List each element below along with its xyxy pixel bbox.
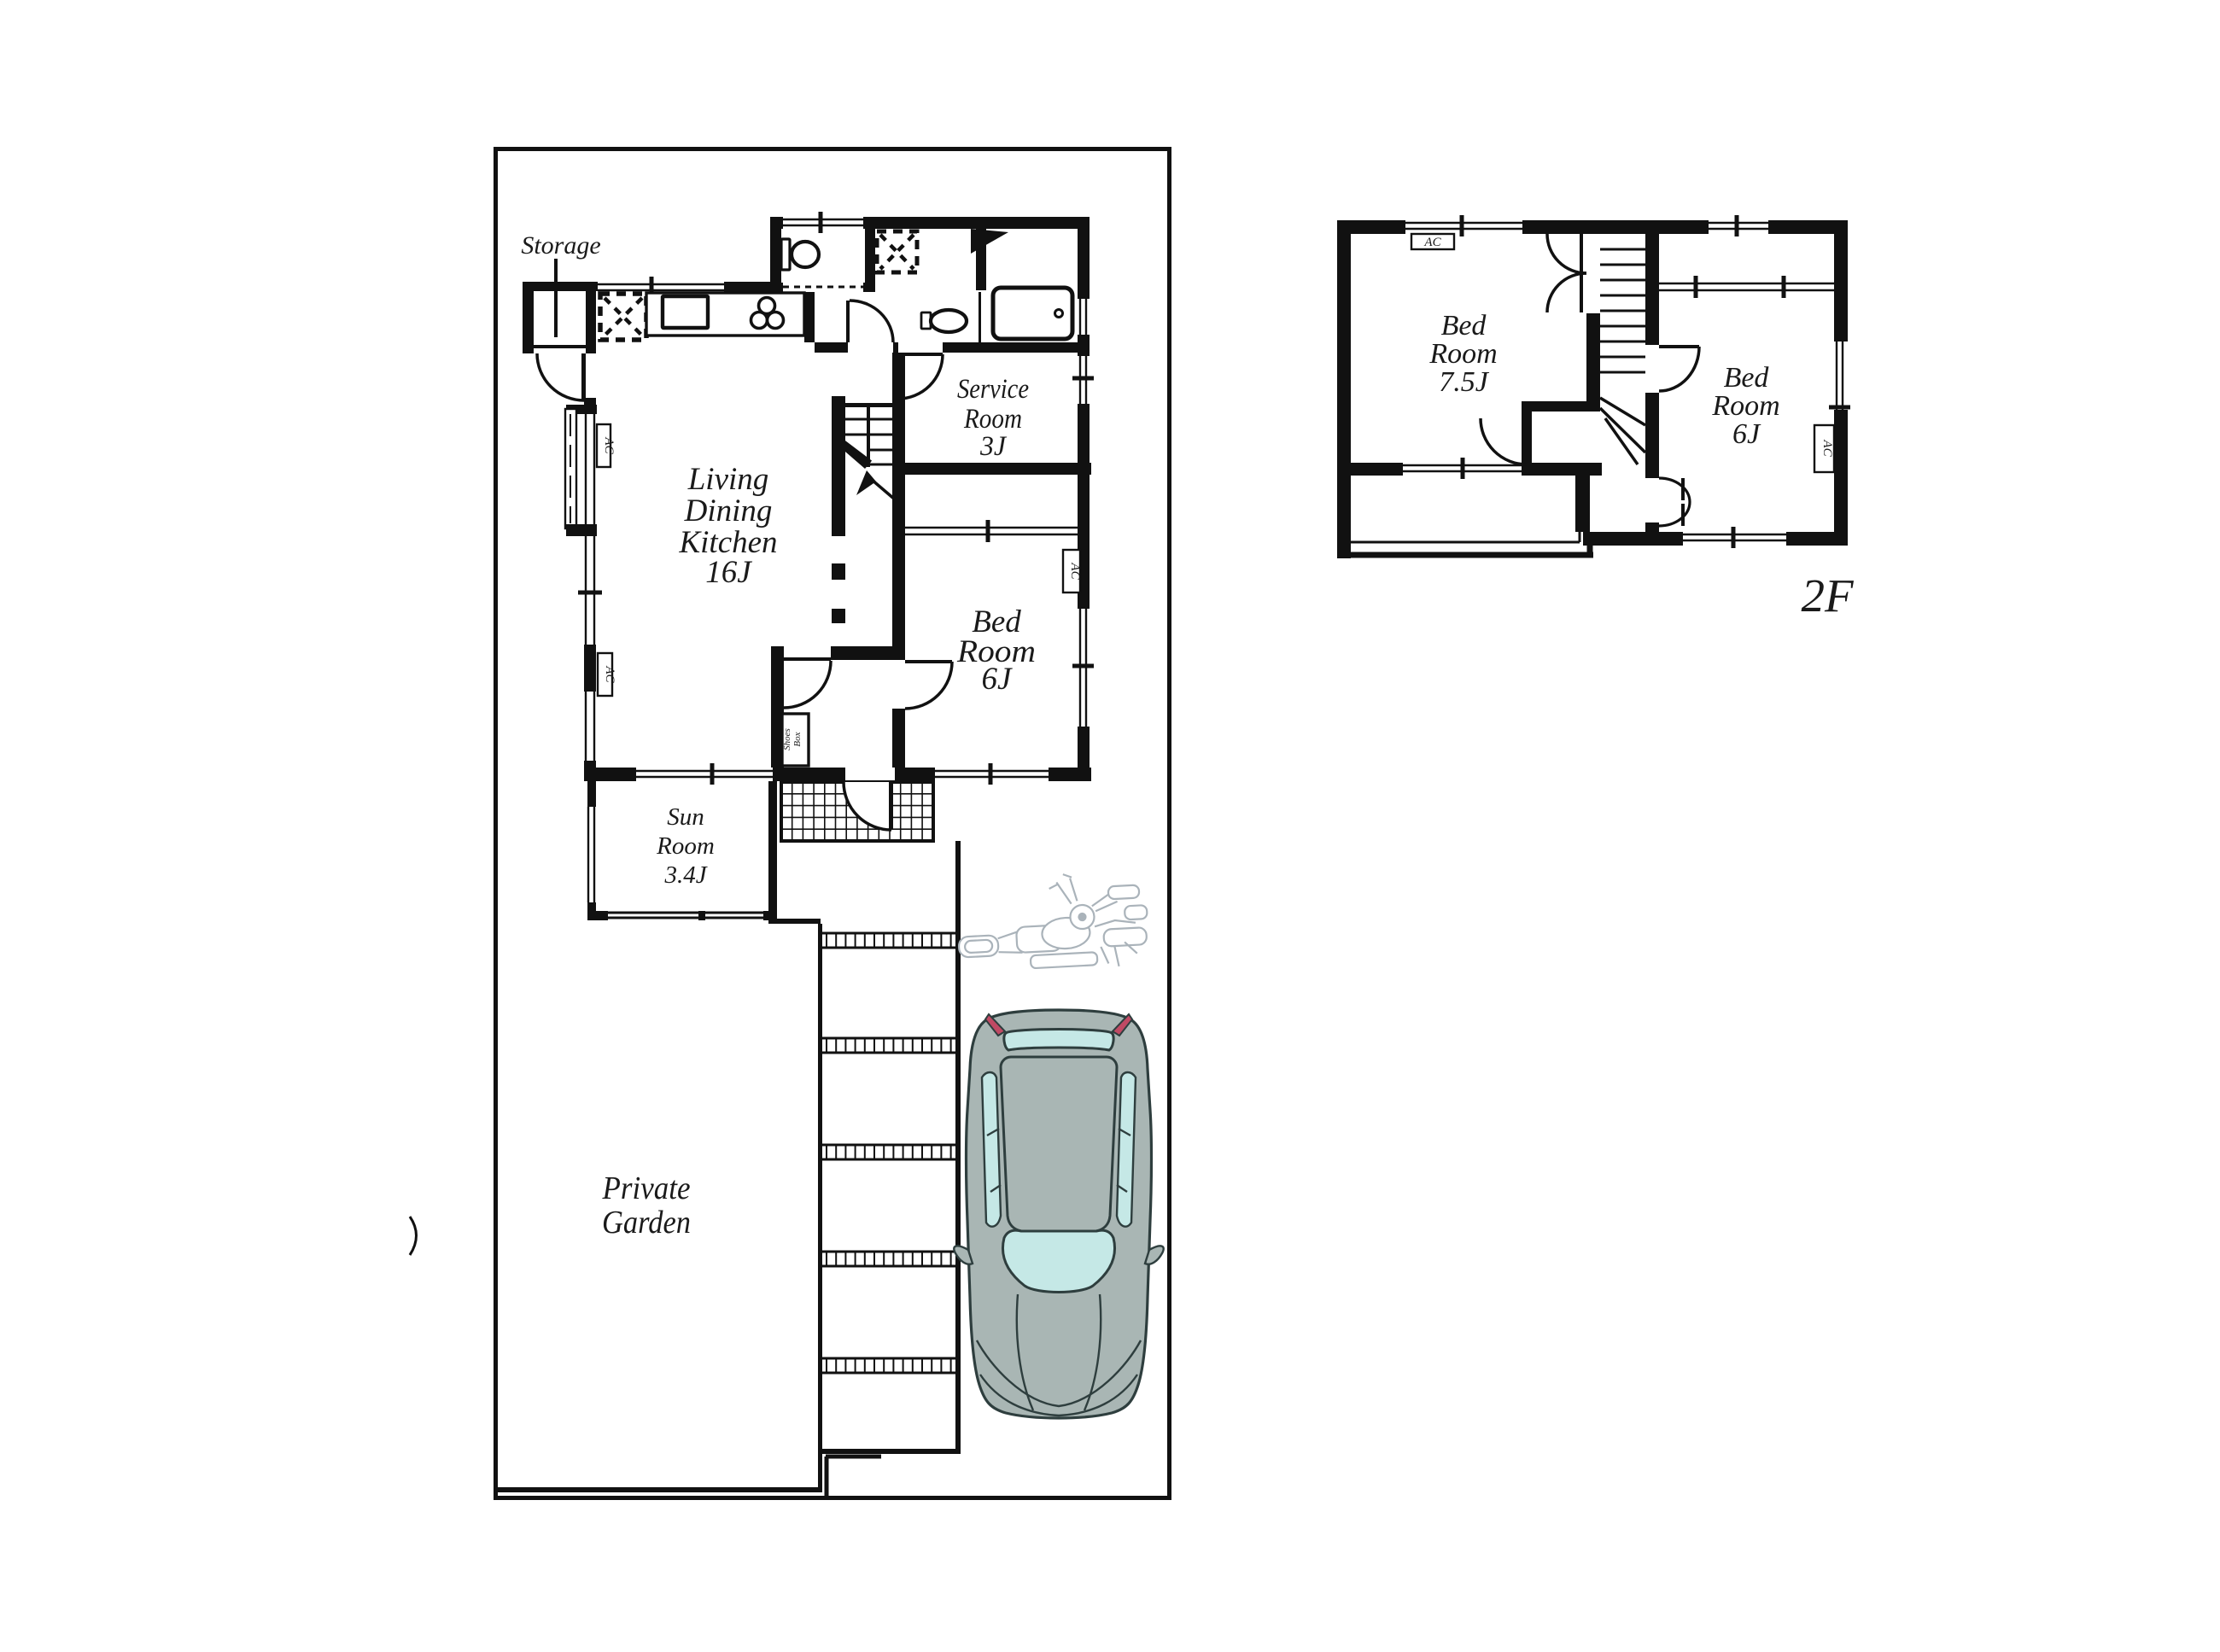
svg-text:Room: Room — [1428, 338, 1497, 370]
svg-text:16J: 16J — [705, 555, 752, 590]
svg-text:Room: Room — [1711, 390, 1779, 422]
svg-text:AC: AC — [1068, 562, 1082, 580]
svg-text:Garden: Garden — [602, 1205, 691, 1240]
svg-text:Bed: Bed — [1441, 310, 1487, 341]
svg-text:Living: Living — [687, 462, 769, 497]
svg-text:AC: AC — [603, 665, 616, 683]
svg-text:Bed: Bed — [1724, 362, 1770, 394]
svg-text:AC: AC — [602, 436, 616, 454]
svg-text:3J: 3J — [979, 431, 1007, 462]
svg-text:Room: Room — [963, 404, 1022, 435]
svg-text:Private: Private — [602, 1170, 691, 1206]
svg-text:6J: 6J — [982, 662, 1014, 697]
svg-text:Room: Room — [656, 832, 715, 860]
svg-text:Storage: Storage — [521, 231, 600, 260]
svg-text:AC: AC — [1820, 439, 1834, 457]
svg-text:Shoes: Shoes — [782, 728, 792, 750]
svg-text:Service: Service — [957, 374, 1029, 405]
svg-text:7.5J: 7.5J — [1439, 366, 1490, 398]
svg-text:2F: 2F — [1801, 569, 1855, 622]
svg-text:Sun: Sun — [667, 803, 704, 831]
svg-text:6J: 6J — [1732, 418, 1761, 450]
svg-text:AC: AC — [1423, 236, 1441, 249]
svg-text:3.4J: 3.4J — [663, 861, 707, 889]
svg-text:Dining: Dining — [684, 493, 773, 528]
svg-text:Box: Box — [792, 732, 803, 746]
